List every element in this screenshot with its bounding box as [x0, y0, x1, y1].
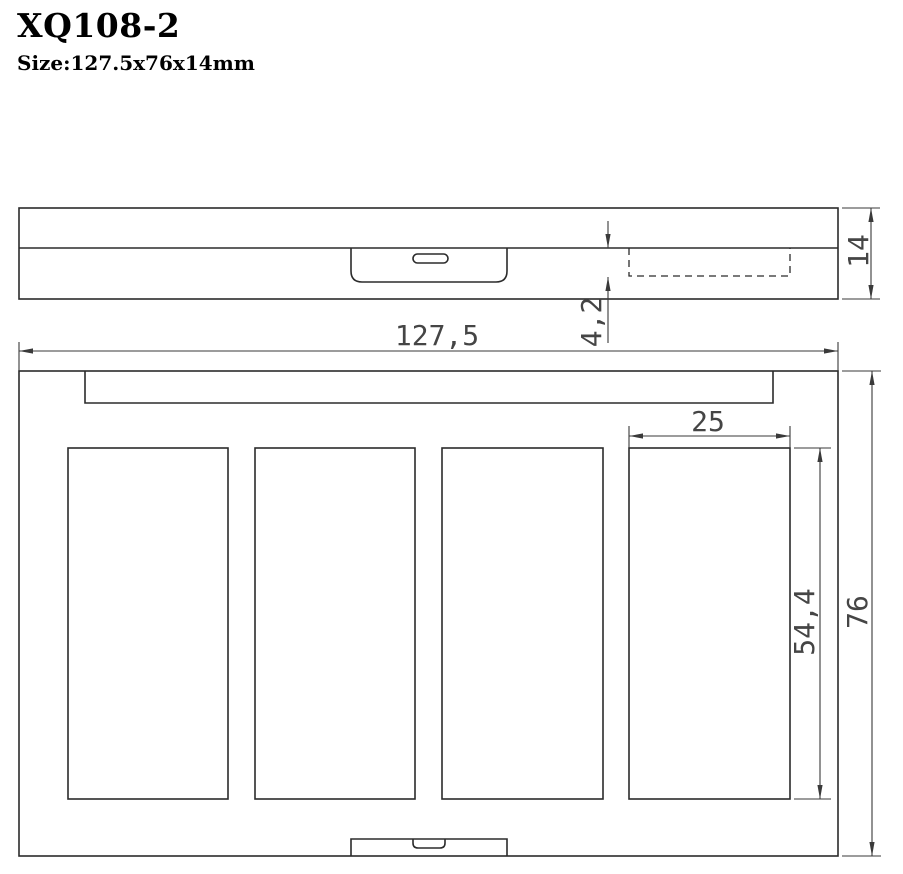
- pan-4: [629, 448, 790, 799]
- dim-overall-width: 127,5: [395, 322, 479, 350]
- hinge-strip: [85, 371, 773, 403]
- dimension-lines: [19, 208, 881, 856]
- dim-recess-depth: 4,2: [578, 297, 606, 348]
- side-latch-tab: [351, 248, 507, 282]
- pan-3: [442, 448, 603, 799]
- pan-2: [255, 448, 415, 799]
- top-view: [19, 371, 838, 856]
- side-thumb-notch: [413, 254, 448, 263]
- front-latch-notch: [413, 839, 445, 848]
- dim-thickness: 14: [845, 234, 873, 268]
- side-hidden-recess: [629, 248, 790, 276]
- technical-drawing: [0, 0, 903, 874]
- pan-1: [68, 448, 228, 799]
- drawing-canvas: XQ108-2 Size:127.5x76x14mm: [0, 0, 903, 874]
- dim-pan-length: 54,4: [791, 588, 819, 655]
- dimension-arrows: [19, 208, 875, 856]
- dim-pan-width: 25: [691, 408, 725, 436]
- side-view: [19, 208, 838, 299]
- plan-outline: [19, 371, 838, 856]
- dim-overall-depth: 76: [844, 595, 872, 629]
